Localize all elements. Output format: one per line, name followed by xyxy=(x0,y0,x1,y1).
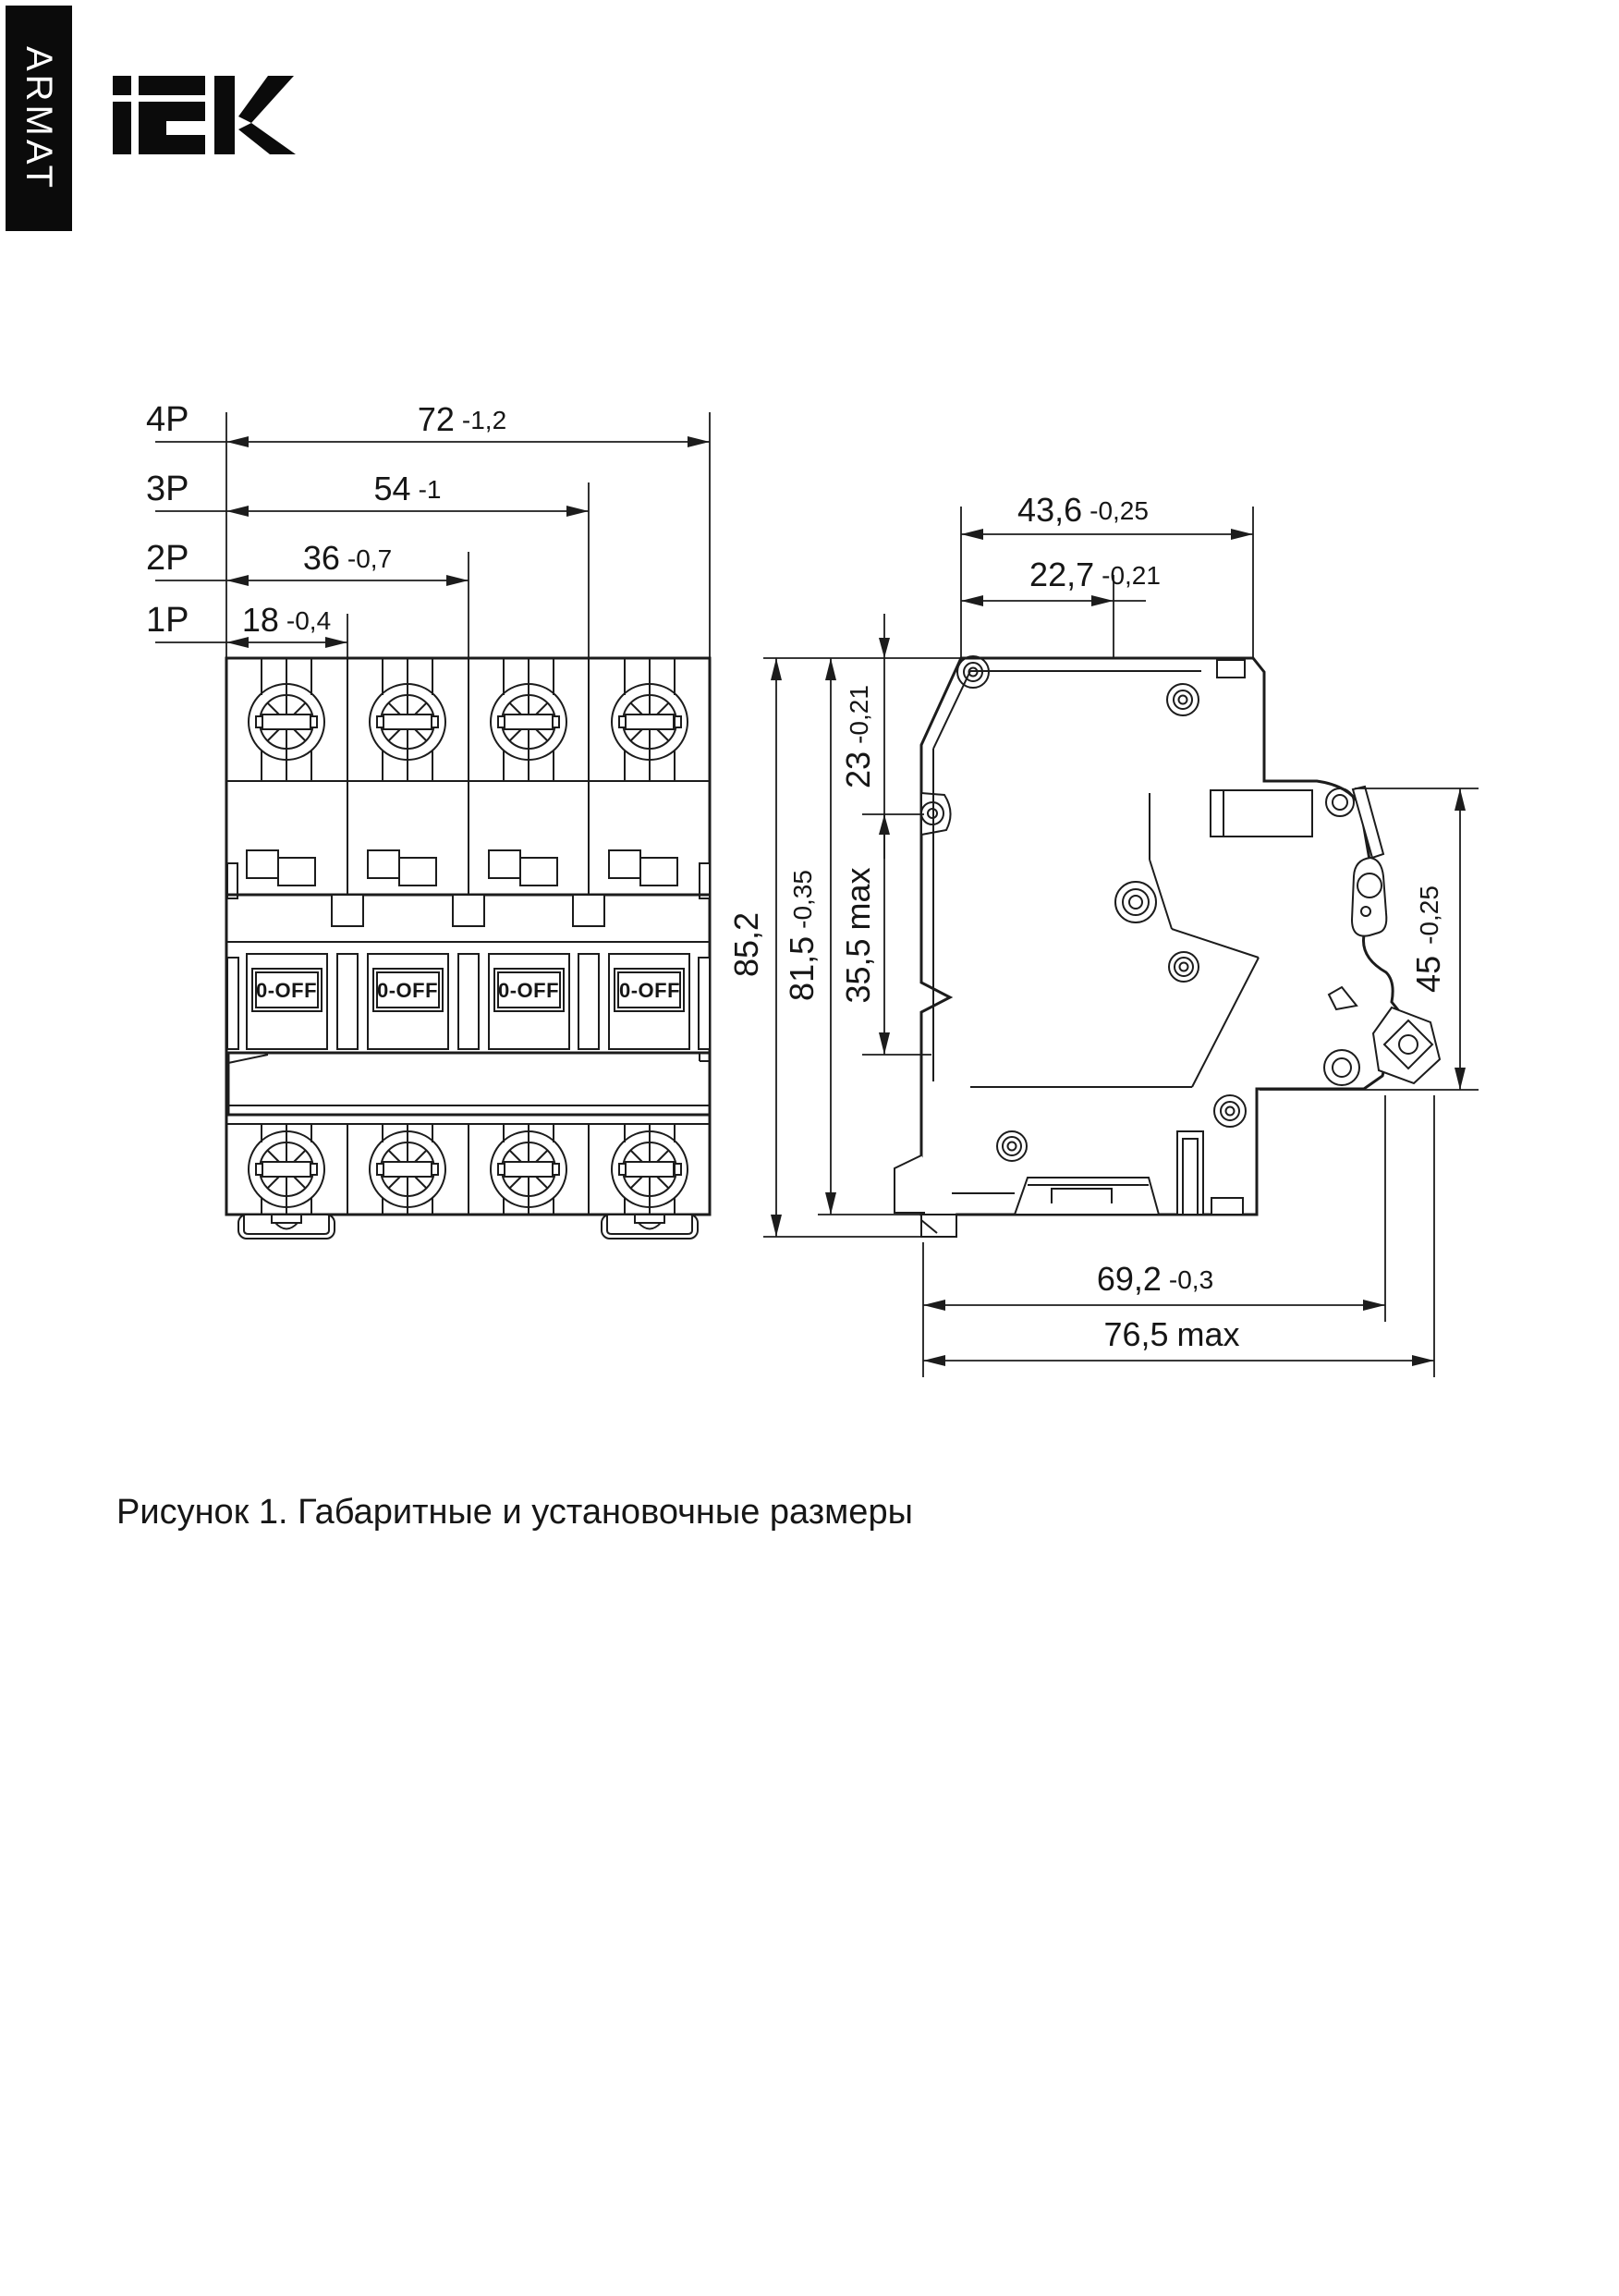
dim-4p: 72-1,2 xyxy=(418,400,506,438)
side-body-outline xyxy=(921,658,1399,1215)
pole-label-1p: 1P xyxy=(146,601,189,640)
page: ARMAT xyxy=(0,0,1619,2296)
screw-icon xyxy=(491,1131,566,1207)
handle-tie-bar xyxy=(228,1053,710,1115)
dim-panel-height: 45-0,25 xyxy=(1409,885,1447,993)
technical-drawing: 0-OFF 0-OFF 0-OFF 0-OFF xyxy=(0,0,1619,2296)
toggle-handles: 0-OFF 0-OFF 0-OFF 0-OFF xyxy=(227,954,710,1049)
screw-icon xyxy=(612,684,688,760)
handle-label: 0-OFF xyxy=(256,979,317,1002)
handle-label: 0-OFF xyxy=(498,979,559,1002)
dim-front-depth: 35,5max xyxy=(839,867,877,1003)
dim-depth-max: 76,5max xyxy=(1103,1315,1239,1353)
figure-caption: Рисунок 1. Габаритные и установочные раз… xyxy=(116,1494,913,1533)
pole-label-4p: 4P xyxy=(146,400,189,439)
screw-icon xyxy=(249,1131,324,1207)
back-bracket xyxy=(921,793,951,835)
dim-offset-top: 23-0,21 xyxy=(839,685,877,788)
front-view: 0-OFF 0-OFF 0-OFF 0-OFF xyxy=(146,400,710,1239)
pole-dividers xyxy=(347,658,589,1215)
mounting-feet xyxy=(238,1215,698,1239)
dim-depth-din: 22,7-0,21 xyxy=(1029,556,1161,593)
housing-notches xyxy=(332,895,604,926)
front-dimensions: 4P 3P 2P 1P 72-1,2 54-1 36-0,7 18-0,4 xyxy=(146,400,710,658)
screw-icon xyxy=(249,684,324,760)
top-clip xyxy=(1217,660,1245,678)
dim-3p: 54-1 xyxy=(374,470,442,507)
handle-label: 0-OFF xyxy=(619,979,680,1002)
dim-height-body: 81,5-0,35 xyxy=(783,870,821,1001)
dim-1p: 18-0,4 xyxy=(242,601,331,639)
dim-depth-top: 43,6-0,25 xyxy=(1017,491,1149,529)
handle-label: 0-OFF xyxy=(377,979,438,1002)
pole-label-2p: 2P xyxy=(146,539,189,578)
dim-depth-body: 69,2-0,3 xyxy=(1097,1260,1213,1298)
screw-icon xyxy=(370,684,445,760)
screw-icon xyxy=(370,1131,445,1207)
side-view: 43,6-0,25 22,7-0,21 85,2 81,5-0,35 23-0,… xyxy=(727,491,1479,1377)
pole-label-3p: 3P xyxy=(146,470,189,508)
screw-icon xyxy=(612,1131,688,1207)
dim-2p: 36-0,7 xyxy=(303,539,392,577)
dim-height-total: 85,2 xyxy=(727,912,765,977)
screw-icon xyxy=(491,684,566,760)
